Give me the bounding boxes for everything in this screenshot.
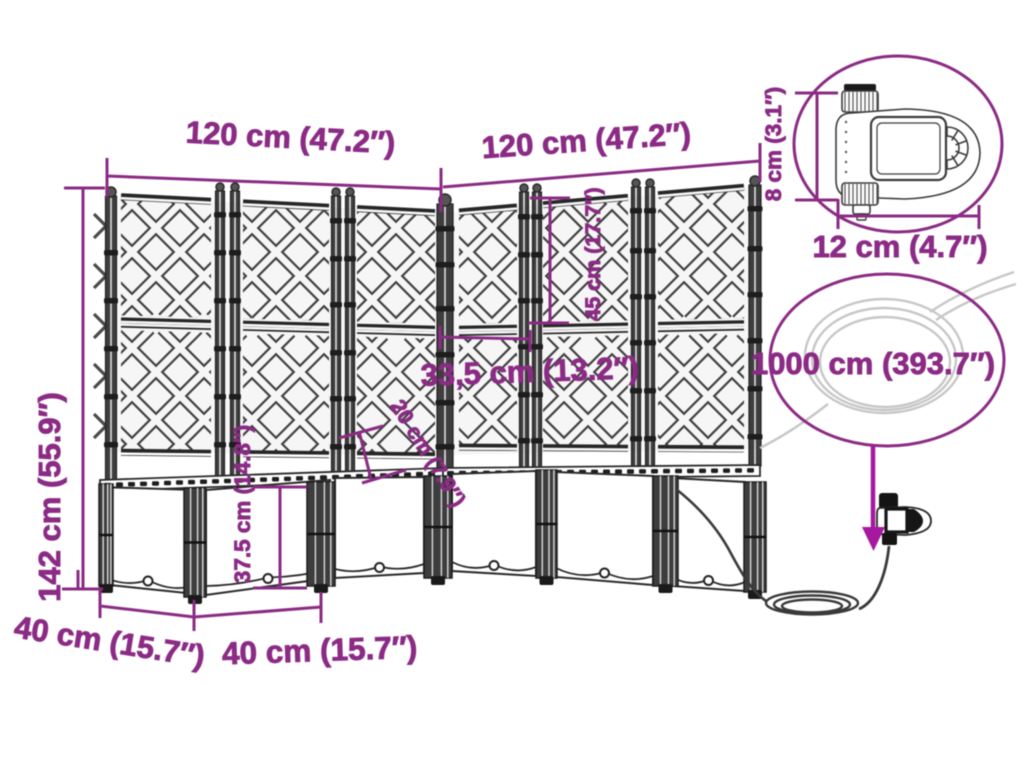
svg-text:12 cm (4.7″): 12 cm (4.7″) [812, 229, 987, 264]
svg-text:37.5 cm (14.8″): 37.5 cm (14.8″) [230, 425, 255, 583]
svg-text:8 cm (3.1″): 8 cm (3.1″) [761, 87, 786, 202]
svg-text:45 cm (17.7″): 45 cm (17.7″) [581, 187, 605, 320]
svg-text:40 cm (15.7″): 40 cm (15.7″) [221, 629, 418, 672]
svg-text:142 cm (55.9″): 142 cm (55.9″) [32, 392, 67, 602]
svg-text:1000 cm (393.7″): 1000 cm (393.7″) [751, 346, 995, 381]
